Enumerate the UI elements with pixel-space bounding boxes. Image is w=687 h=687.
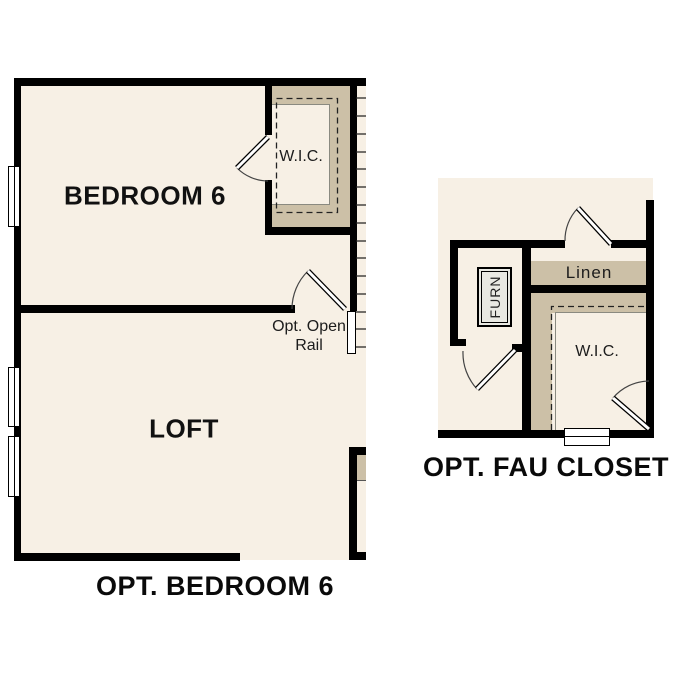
fau-wall-bottom: [438, 430, 654, 438]
fau-wall-right: [646, 200, 654, 438]
fau-wic-shelf-top: [531, 293, 646, 313]
window: [8, 166, 20, 227]
floor-plan-canvas: BEDROOM 6 LOFT W.I.C. Opt. Open Rail OPT…: [0, 0, 687, 687]
bedroom6-label: BEDROOM 6: [64, 181, 226, 212]
wic-label: W.I.C.: [279, 148, 323, 166]
open-rail-label-line2: Rail: [295, 337, 323, 355]
furn-closet-wall-left: [450, 240, 458, 346]
fau-wic-core: [555, 312, 646, 430]
cased-opening: [564, 428, 610, 446]
fau-wic-label: W.I.C.: [575, 343, 619, 361]
open-rail-label-line1: Opt. Open: [272, 318, 346, 336]
linen-label: Linen: [566, 263, 613, 283]
window-mullion: [14, 368, 15, 426]
loft-label: LOFT: [149, 414, 219, 445]
wall-bottom: [14, 553, 240, 561]
furn-closet-wall-stub: [458, 339, 466, 346]
linen-wall-bottom: [531, 285, 654, 293]
stairwell-wall-top-flange: [349, 447, 366, 455]
window-mullion: [14, 437, 15, 496]
fau-wall-center-stub: [512, 344, 522, 352]
fau-wic-shelf-left: [531, 293, 552, 430]
stairwell-wall-bottom-flange: [349, 552, 366, 560]
open-rail: [347, 311, 356, 354]
window: [8, 367, 20, 427]
wic-wall-left-upper: [265, 86, 272, 135]
furnace-unit: FURN: [477, 267, 512, 327]
fau-wall-top-left: [450, 240, 565, 248]
stairwell-wall-vertical: [349, 447, 357, 560]
wall-right: [350, 86, 357, 311]
window-mullion: [14, 167, 15, 226]
plan-title-fau-closet: OPT. FAU CLOSET: [423, 452, 669, 483]
wall-top: [14, 78, 366, 86]
cased-opening-line: [565, 436, 609, 437]
fau-wall-top-right: [611, 240, 654, 248]
fau-wall-center: [522, 240, 531, 438]
stairwell-shelf: [357, 455, 366, 481]
window: [8, 436, 20, 497]
plan-title-bedroom6: OPT. BEDROOM 6: [96, 571, 334, 602]
wall-divider-bedroom-loft: [14, 305, 295, 313]
furnace-label: FURN: [487, 276, 503, 319]
wic-wall-bottom: [265, 227, 357, 235]
